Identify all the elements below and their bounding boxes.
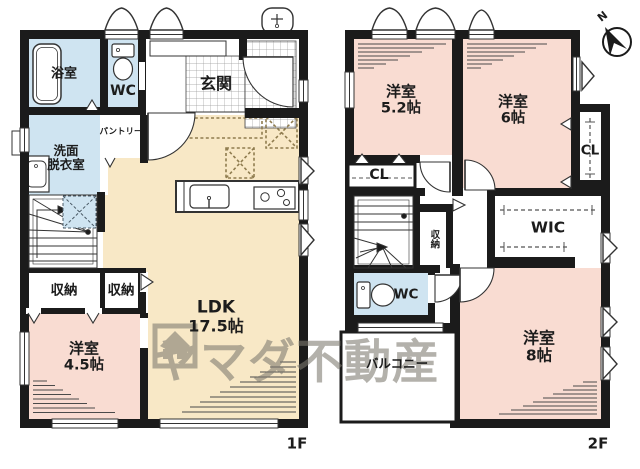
stairs-1f — [29, 195, 97, 268]
stove-icon — [254, 187, 295, 209]
toilet-icon-1f — [112, 44, 134, 80]
label-closet-a: CL — [369, 168, 388, 184]
floorplan: ヤマダ不動産 浴室 WC 玄関 洗面 脱衣室 パントリー 収納 収納 LDK 1… — [0, 0, 640, 469]
label-balcony: バルコニー — [366, 357, 428, 371]
label-ldk: LDK 17.5帖 — [188, 299, 243, 336]
label-bedroom-52: 洋室 5.2帖 — [381, 83, 421, 116]
toilet-icon-2f — [357, 282, 395, 308]
bedroom52-door-arc — [420, 162, 450, 192]
balcony-outline — [341, 332, 456, 422]
label-bedroom-45: 洋室 4.5帖 — [64, 340, 104, 373]
label-bedroom-8: 洋室 8帖 — [523, 329, 555, 364]
kitchen-counter — [176, 181, 299, 212]
label-washroom: 洗面 脱衣室 — [47, 144, 85, 172]
label-wc-2f: WC — [394, 287, 419, 302]
label-bedroom-6: 洋室 6帖 — [498, 93, 528, 126]
label-storage-b: 収納 — [108, 283, 135, 298]
stairs-2f — [354, 196, 413, 268]
shoe-cabinet — [150, 41, 226, 56]
label-storage-a: 収納 — [51, 283, 78, 298]
label-wc-1f: WC — [110, 84, 136, 100]
label-storage-2f: 収納 — [428, 230, 439, 249]
compass — [603, 27, 631, 56]
label-floor-2f: 2F — [588, 436, 609, 453]
label-closet-b: CL — [581, 143, 600, 158]
label-pantry: パントリー — [100, 128, 143, 138]
label-floor-1f: 1F — [287, 436, 308, 453]
label-bathroom: 浴室 — [51, 68, 77, 83]
room-ldk — [148, 115, 299, 419]
label-wic: WIC — [531, 219, 565, 236]
compass-needle-icon — [605, 27, 627, 56]
label-entrance: 玄関 — [200, 75, 232, 93]
